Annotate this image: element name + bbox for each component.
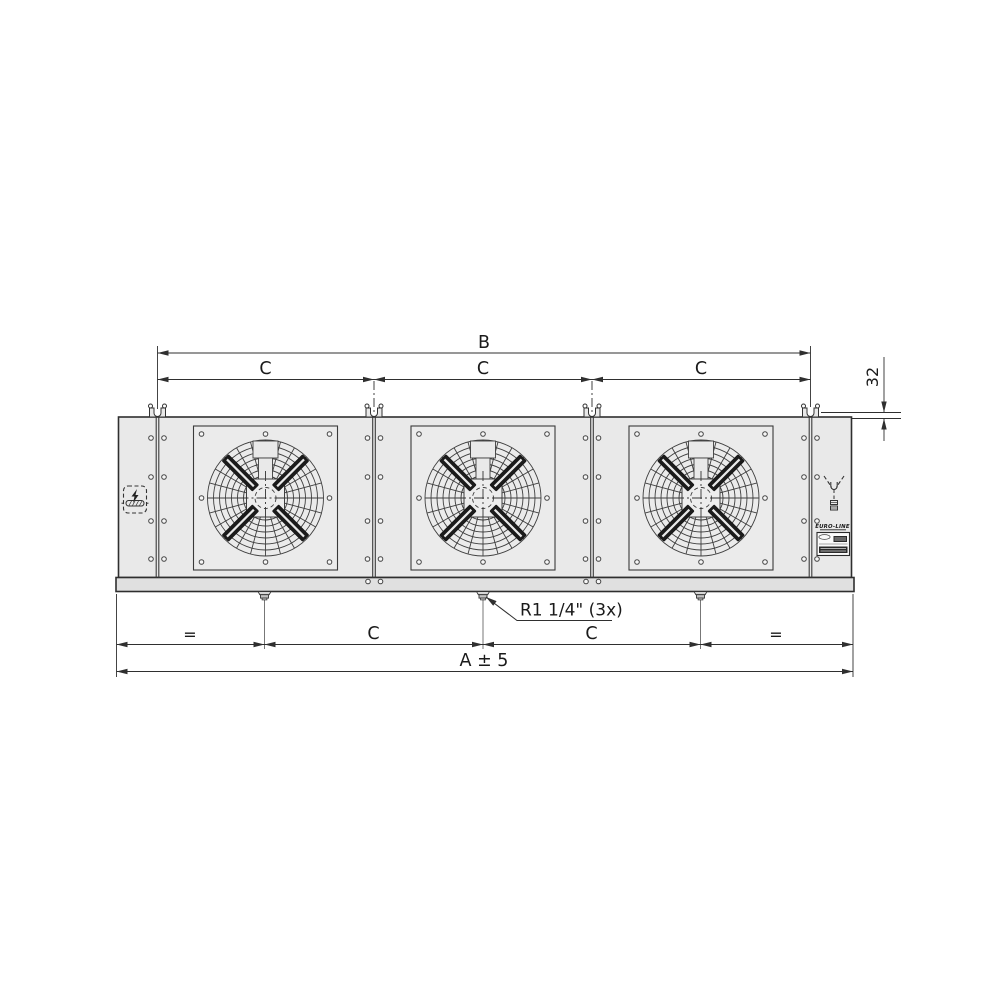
drain-fitting-1: [258, 592, 271, 600]
c-dimension-label-2: C: [477, 359, 489, 379]
overall-dimension-label: A ± 5: [460, 651, 509, 671]
c-dimension-label-bottom-1: C: [367, 624, 379, 644]
drain-centerlines: [265, 592, 701, 649]
drain-fitting-3: [694, 592, 707, 600]
equal-label-left: =: [183, 625, 196, 644]
b-dimension-label: B: [478, 333, 490, 353]
drain-callout: R1 1/4" (3x): [486, 597, 623, 621]
c-dimension-label-3: C: [695, 359, 707, 379]
offset-dimension-label: 32: [863, 367, 882, 387]
dimension-overall-a: A ± 5: [117, 651, 854, 674]
air-cooler-drawing: EURO-LINE B C C C 32: [0, 0, 1000, 1000]
fan-unit-3: [629, 426, 773, 570]
bottom-flange: [116, 578, 854, 592]
brand-logo-text: EURO-LINE: [815, 524, 850, 530]
dimension-c-top: C C C: [158, 359, 811, 413]
technical-drawing-page: EURO-LINE B C C C 32: [0, 0, 1000, 1000]
c-dimension-label-bottom-2: C: [585, 624, 597, 644]
equal-label-right: =: [769, 625, 782, 644]
nameplate: [817, 533, 850, 556]
fan-unit-1: [194, 426, 338, 570]
fan-unit-2: [411, 426, 555, 570]
c-dimension-label-1: C: [259, 359, 271, 379]
drain-callout-label: R1 1/4" (3x): [520, 601, 623, 621]
brand-logo: EURO-LINE: [815, 524, 850, 530]
